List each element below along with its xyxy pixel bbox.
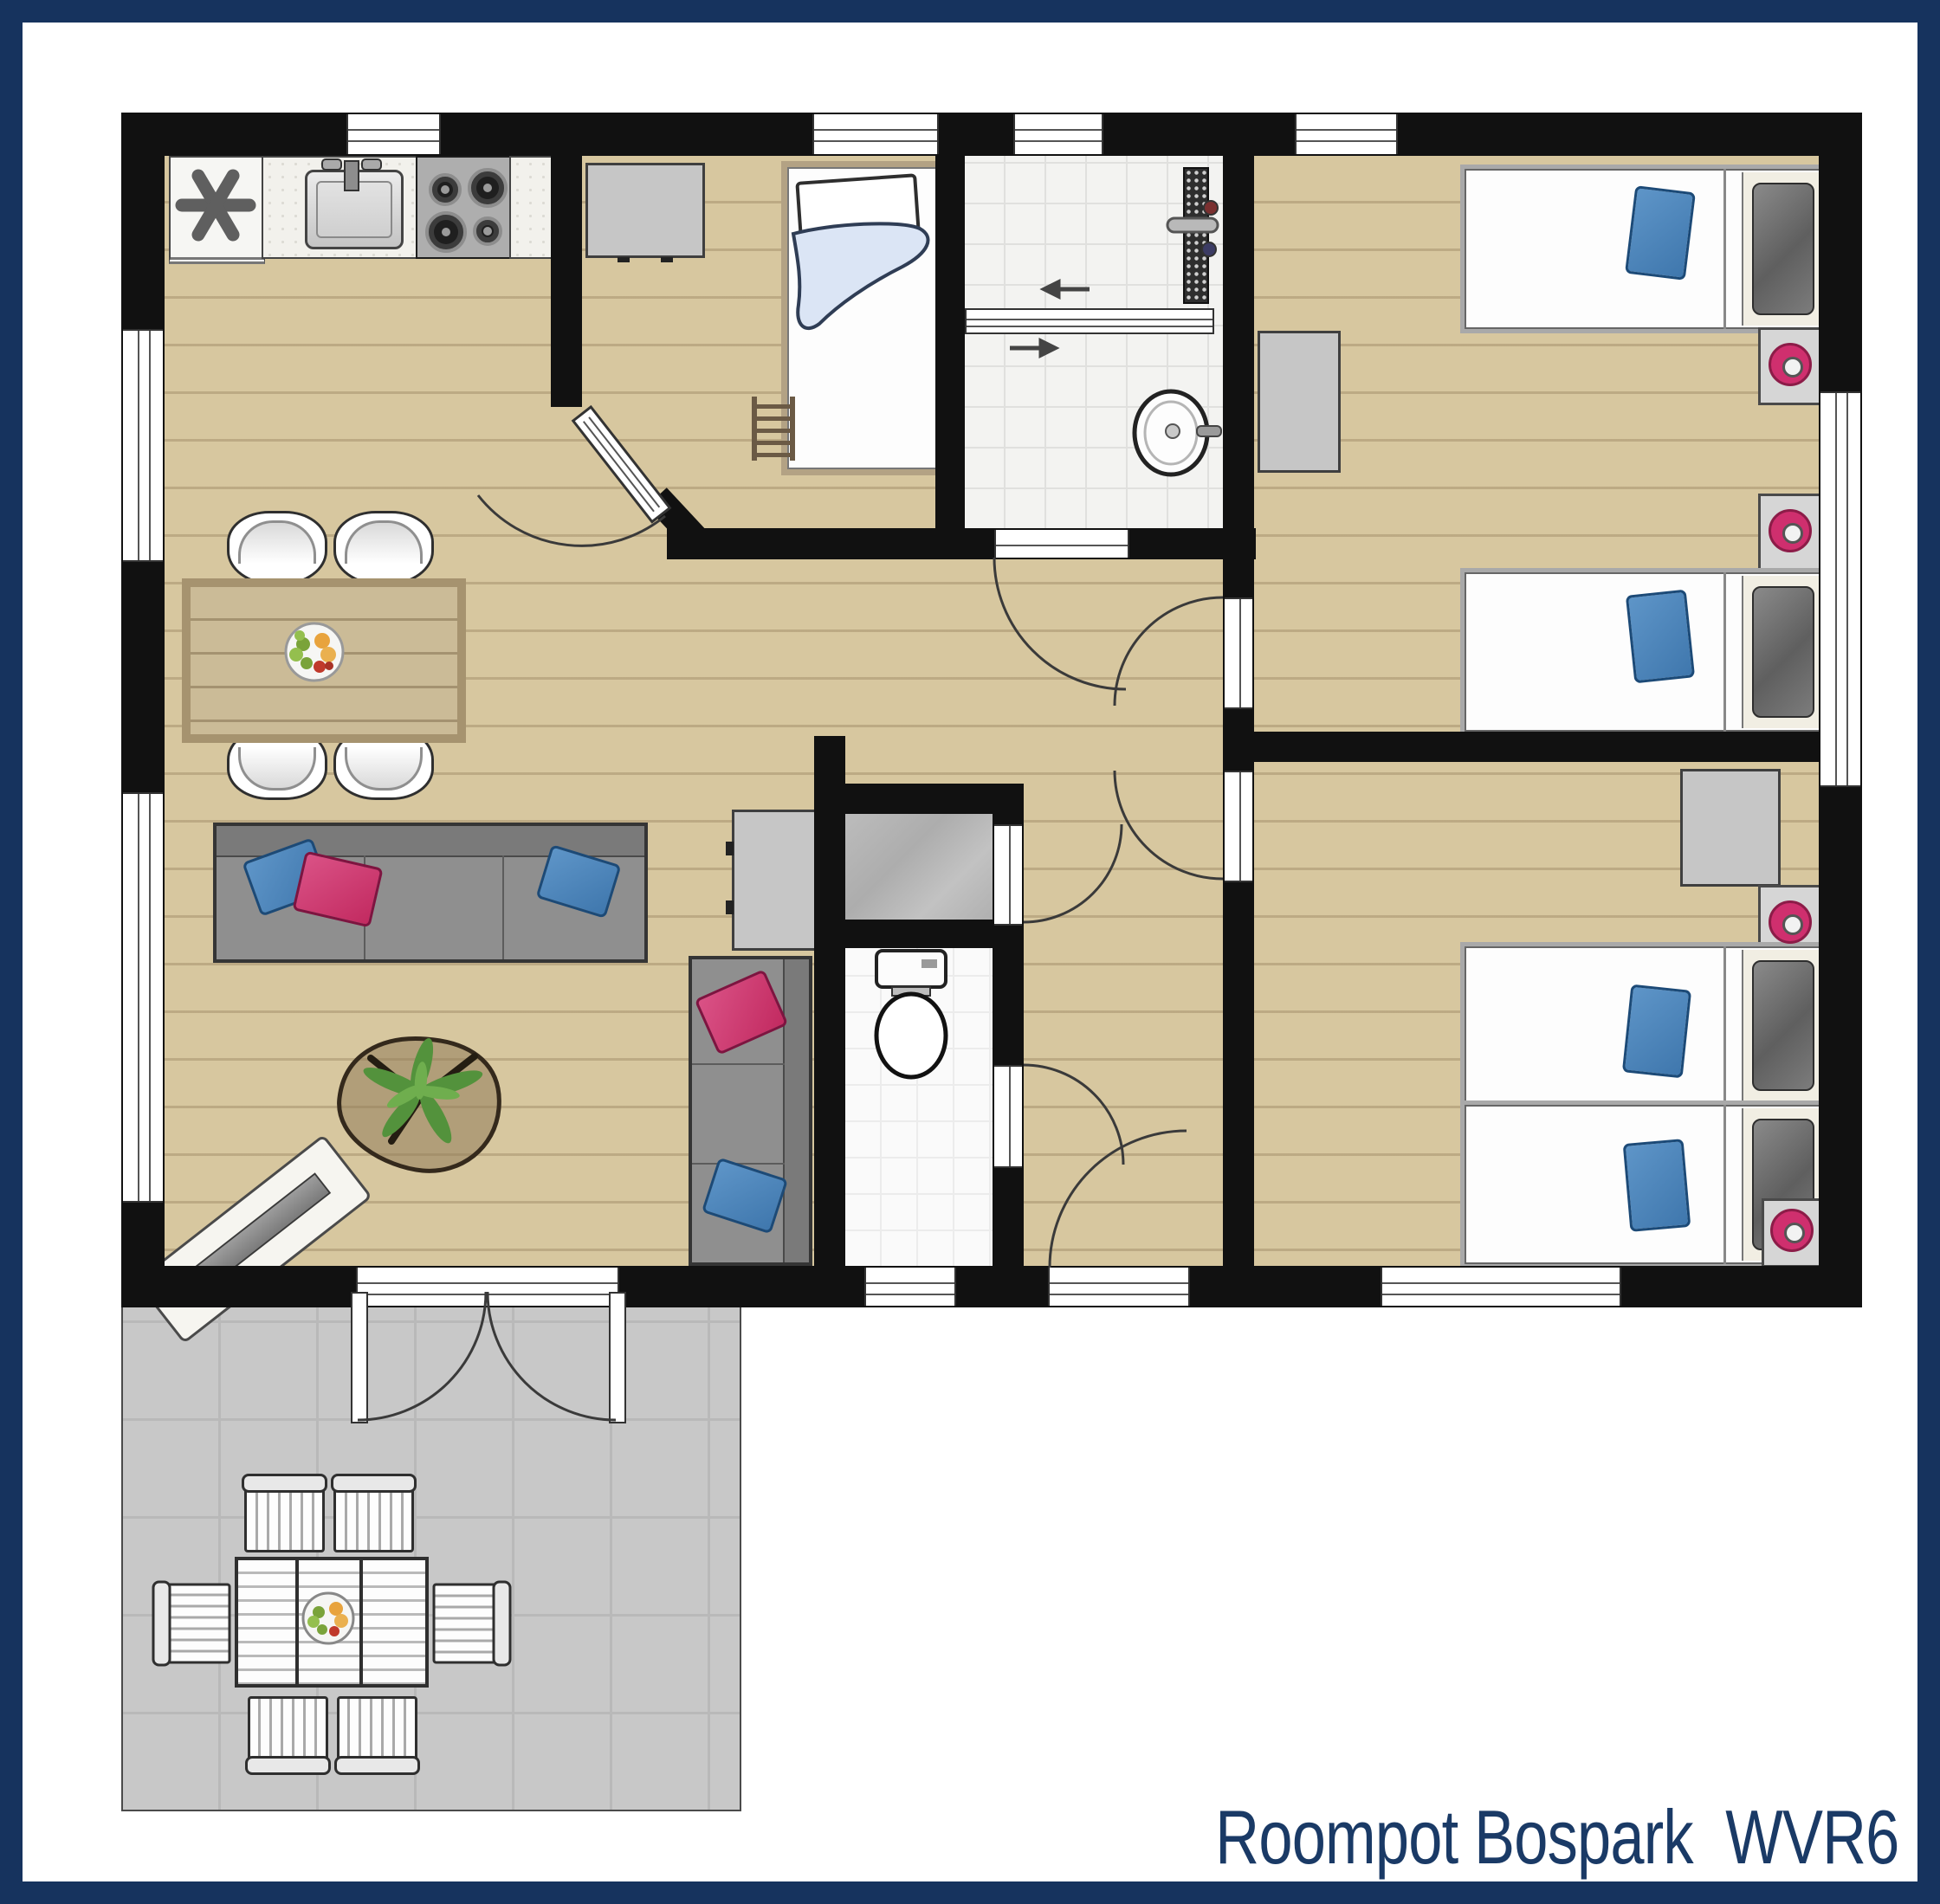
plan-title: Roompot Bospark WVR6: [1215, 1793, 1898, 1881]
terrace-chair: [157, 1584, 231, 1664]
bed-pillow-blue: [1623, 1139, 1691, 1232]
window-toilet: [864, 1268, 956, 1306]
window-bedroom2-top: [1295, 114, 1398, 154]
closet-door-opening: [994, 824, 1022, 926]
window-bedroom1: [812, 114, 939, 154]
terrace-chair: [433, 1584, 508, 1664]
wall-hallway-east: [1223, 156, 1254, 1266]
stove-burner: [429, 173, 462, 206]
dining-chair: [227, 511, 327, 585]
floor-plan-page: Roompot Bospark WVR6: [0, 0, 1940, 1904]
stove-burner: [468, 168, 508, 208]
lamp-icon: [1769, 509, 1812, 552]
terrace-table: [235, 1557, 429, 1688]
wall-bathroom-west: [935, 156, 965, 559]
dining-chair: [333, 511, 434, 585]
bedroom1-bed: [781, 161, 947, 475]
french-door-leaf: [351, 1292, 368, 1423]
tv-sideboard: [732, 810, 819, 951]
terrace-chair: [333, 1478, 414, 1552]
front-door-opening: [1048, 1268, 1190, 1306]
french-doorway: [356, 1268, 619, 1306]
bed-pillow: [795, 173, 921, 253]
bedroom3-door-opening: [1225, 771, 1252, 882]
dining-table: [182, 578, 466, 743]
bedroom1-dresser: [585, 163, 705, 258]
window-bathroom: [1013, 114, 1103, 154]
bed-ladder-icon: [752, 397, 795, 461]
wall-kitchen-bedroom1: [551, 156, 582, 407]
bedroom3-wardrobe: [1680, 769, 1781, 887]
terrace-chair: [248, 1696, 328, 1771]
wall-bedroom2-3-divider: [1254, 732, 1819, 762]
window-right-bedroom2: [1820, 391, 1860, 787]
kitchen-sink: [305, 170, 404, 249]
terrace-floor: [121, 1307, 741, 1811]
lamp-icon: [1769, 900, 1812, 944]
lamp-icon: [1769, 343, 1812, 386]
dresser-handle: [661, 257, 673, 262]
bedroom2-cabinet: [1258, 331, 1341, 473]
bathroom-door-opening: [994, 530, 1129, 558]
terrace-chair: [337, 1696, 417, 1771]
wall-closet-north: [845, 784, 993, 814]
french-door-leaf: [609, 1292, 626, 1423]
toilet-door-opening: [994, 1065, 1022, 1168]
bed-pillow-blue: [1626, 590, 1695, 684]
dresser-handle: [618, 257, 630, 262]
window-left-2: [123, 792, 163, 1203]
window-bedroom3: [1381, 1268, 1621, 1306]
bathroom-sliding-door: [965, 308, 1214, 334]
kitchen-counter: [509, 156, 554, 259]
window-left-1: [123, 329, 163, 562]
bedroom2-door-opening: [1225, 597, 1252, 709]
wall-toilet-west: [814, 736, 845, 1266]
terrace-chair: [244, 1478, 325, 1552]
storage-closet-floor: [845, 814, 993, 920]
bed-pillow-blue: [1625, 185, 1696, 281]
bed-pillow-blue: [1622, 984, 1691, 1079]
lamp-icon: [1770, 1209, 1814, 1252]
wall-closet-toilet-divider: [845, 920, 993, 948]
stove-burner: [473, 216, 502, 246]
stove: [416, 156, 513, 259]
stove-burner: [425, 211, 467, 253]
window-kitchen: [346, 114, 441, 154]
shower-drain-icon: [1183, 167, 1209, 304]
toilet-floor: [845, 948, 993, 1266]
freezer-unit: [169, 156, 265, 264]
